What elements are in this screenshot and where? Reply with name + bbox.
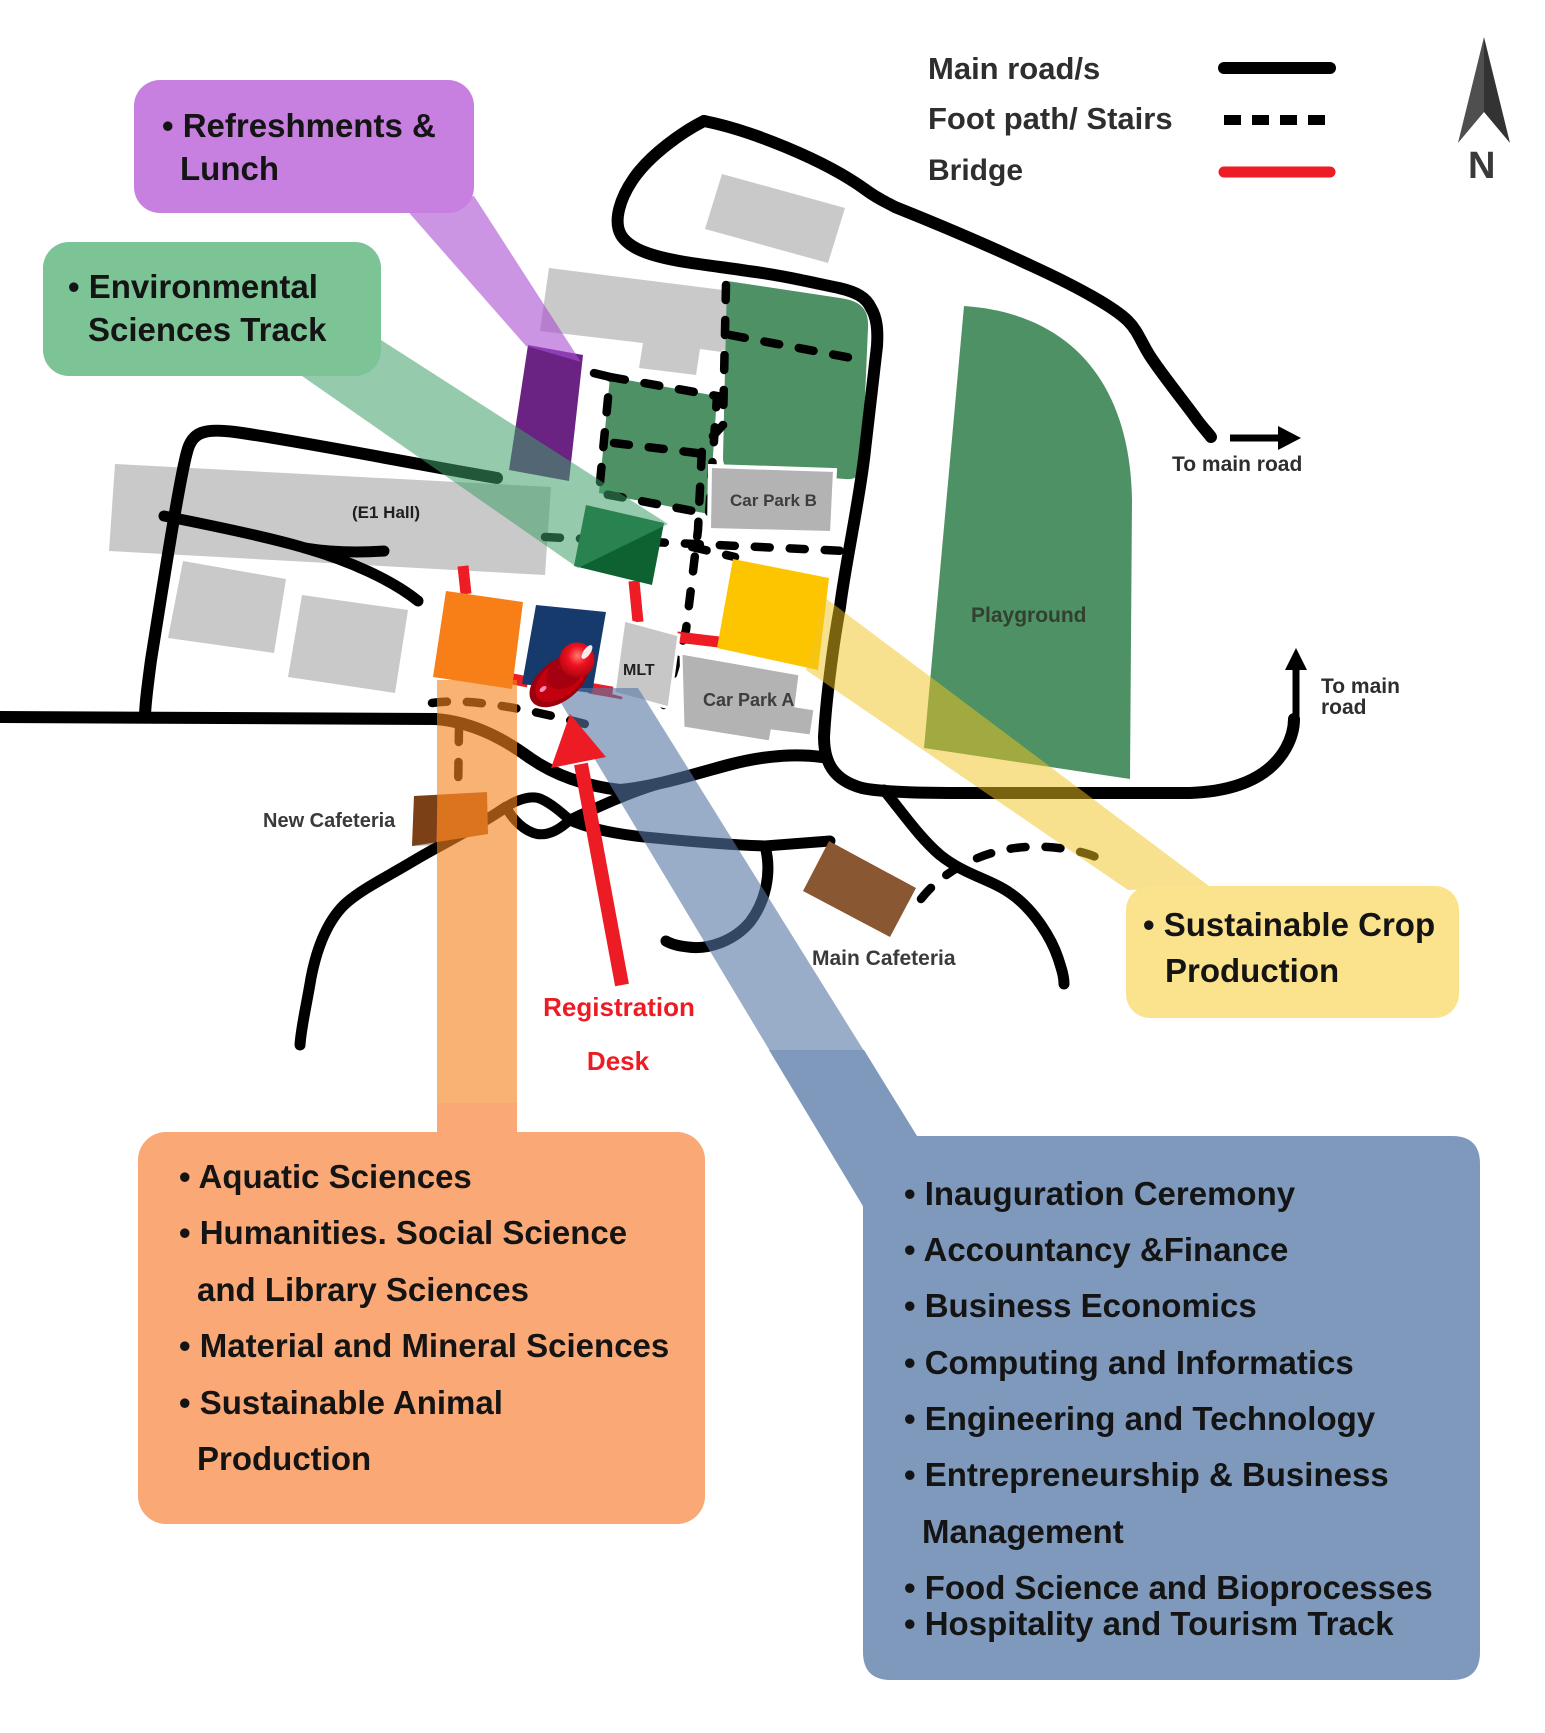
svg-text:(E1 Hall): (E1 Hall)	[352, 503, 420, 522]
svg-text:Lunch: Lunch	[180, 150, 279, 187]
svg-text:• Inauguration Ceremony: • Inauguration Ceremony	[904, 1175, 1296, 1212]
svg-text:Production: Production	[197, 1440, 371, 1477]
svg-text:To main: To main	[1321, 675, 1400, 698]
svg-text:• Hospitality and Tourism Trac: • Hospitality and Tourism Track	[904, 1605, 1394, 1642]
svg-text:Main road/s: Main road/s	[928, 51, 1100, 86]
svg-text:Main Cafeteria: Main Cafeteria	[812, 947, 956, 970]
svg-text:Playground: Playground	[971, 604, 1087, 627]
svg-text:• Accountancy &Finance: • Accountancy &Finance	[904, 1231, 1288, 1268]
svg-text:Foot path/ Stairs: Foot path/ Stairs	[928, 101, 1173, 136]
svg-text:MLT: MLT	[623, 662, 655, 679]
svg-text:• Humanities. Social Science: • Humanities. Social Science	[179, 1214, 627, 1251]
svg-text:• Business Economics: • Business Economics	[904, 1287, 1257, 1324]
svg-text:Bridge: Bridge	[928, 154, 1023, 187]
svg-text:• Entrepreneurship & Business: • Entrepreneurship & Business	[904, 1456, 1389, 1493]
svg-text:• Environmental: • Environmental	[68, 268, 318, 305]
svg-text:Car Park A: Car Park A	[703, 690, 794, 710]
svg-text:To main road: To main road	[1172, 453, 1302, 476]
svg-text:Sciences Track: Sciences Track	[88, 311, 327, 348]
svg-text:• Aquatic Sciences: • Aquatic Sciences	[179, 1158, 472, 1195]
svg-text:Production: Production	[1165, 952, 1339, 989]
svg-text:Management: Management	[922, 1513, 1124, 1550]
svg-text:• Engineering and Technology: • Engineering and Technology	[904, 1400, 1376, 1437]
svg-text:Desk: Desk	[587, 1046, 650, 1076]
svg-text:• Computing and Informatics: • Computing and Informatics	[904, 1344, 1354, 1381]
svg-text:• Food Science and Bioprocesse: • Food Science and Bioprocesses	[904, 1569, 1433, 1606]
svg-text:• Refreshments &: • Refreshments &	[162, 107, 436, 144]
svg-text:road: road	[1321, 696, 1367, 719]
svg-text:• Material and Mineral Science: • Material and Mineral Sciences	[179, 1327, 669, 1364]
svg-text:Car Park B: Car Park B	[730, 491, 817, 510]
svg-text:New Cafeteria: New Cafeteria	[263, 810, 396, 832]
svg-text:and Library Sciences: and Library Sciences	[197, 1271, 529, 1308]
svg-text:• Sustainable Animal: • Sustainable Animal	[179, 1384, 503, 1421]
svg-text:• Sustainable Crop: • Sustainable Crop	[1143, 906, 1435, 943]
svg-text:N: N	[1468, 145, 1495, 187]
svg-text:Registration: Registration	[543, 992, 695, 1022]
